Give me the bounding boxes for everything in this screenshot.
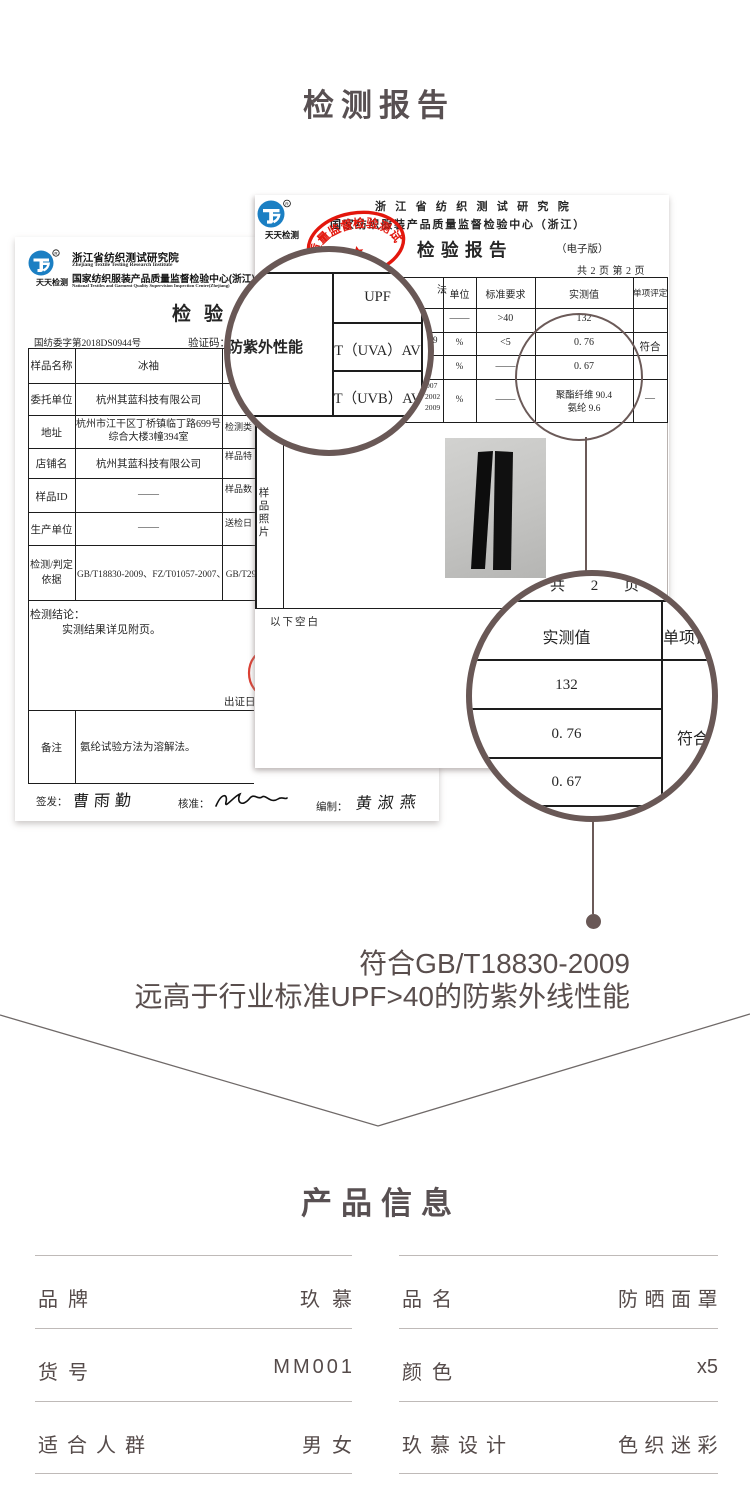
svg-text:R: R <box>285 202 289 208</box>
